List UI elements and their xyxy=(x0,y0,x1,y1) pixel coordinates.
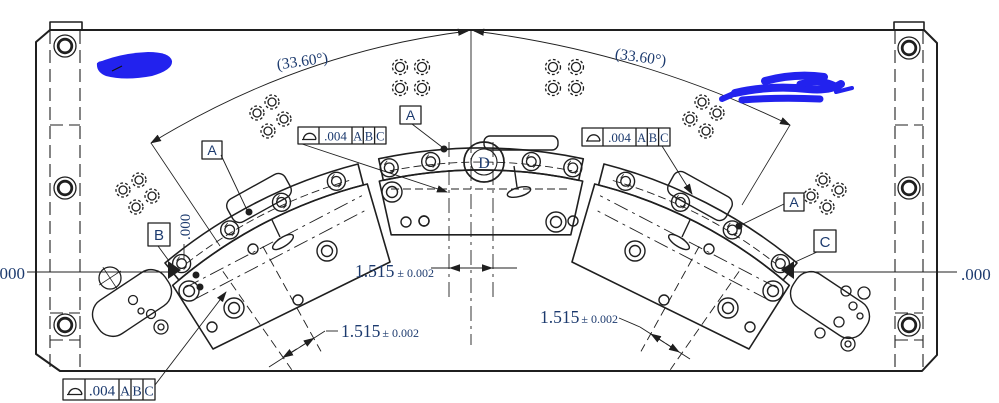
counterbore-hole xyxy=(382,182,402,202)
profile-of-surface-icon xyxy=(67,389,82,395)
plate-tab-right xyxy=(894,22,924,30)
datum-label-d: D xyxy=(478,155,490,172)
counterbore-hole xyxy=(224,298,244,318)
dim-value: 1.515 xyxy=(355,261,395,281)
zero-right-text: .000 xyxy=(961,265,991,284)
screw xyxy=(273,193,291,211)
datum-letter: B xyxy=(154,227,164,244)
angle-dim-right-text: (33.60°) xyxy=(614,46,667,70)
gdt-datum: B xyxy=(649,131,657,145)
zero-left-text: .000 xyxy=(0,264,25,283)
counterbore-hole xyxy=(317,241,337,261)
hole-cluster xyxy=(683,95,724,138)
dim-right-text: 1.515± 0.002 xyxy=(540,307,618,327)
gdt-datum: A xyxy=(120,385,131,400)
drawing-canvas: D (33.60°) (33.60°) 1.515± 0.002 xyxy=(0,0,999,403)
zero-vertical-text: .000 xyxy=(178,214,194,240)
gdt-datum: B xyxy=(132,385,141,400)
section-dot xyxy=(197,284,204,291)
gdt-tolerance: .004 xyxy=(89,384,116,400)
counterbore-hole xyxy=(718,298,738,318)
t-pin-right xyxy=(666,220,691,252)
screw xyxy=(380,159,398,177)
dim-tolerance: ± 0.002 xyxy=(397,266,434,280)
hole-cluster-grid xyxy=(546,60,584,96)
dim-center-text: 1.515± 0.002 xyxy=(355,261,434,281)
dowel-hole-clusters xyxy=(116,60,846,215)
hole-cluster xyxy=(250,95,291,138)
screw xyxy=(522,153,540,171)
counterbore-hole xyxy=(179,281,199,301)
gdt-tolerance: .004 xyxy=(324,129,347,144)
datum-feature-triangle-c xyxy=(781,261,794,279)
screw xyxy=(564,159,582,177)
gdt-datum: C xyxy=(376,130,384,144)
screw xyxy=(327,172,345,190)
profile-of-surface-icon xyxy=(302,133,316,139)
hole xyxy=(207,322,217,332)
gdt-datum: A xyxy=(353,130,362,144)
datum-letter: A xyxy=(207,142,217,158)
hole xyxy=(659,295,669,305)
plate-tab-left xyxy=(50,22,82,30)
pad-left xyxy=(86,263,178,343)
hole xyxy=(293,295,303,305)
dim-value: 1.515 xyxy=(341,321,381,341)
dim-tolerance: ± 0.002 xyxy=(382,326,419,340)
blue-scribble-left xyxy=(97,52,172,79)
blue-scribble-right xyxy=(722,76,852,100)
hole-cluster-grid xyxy=(393,60,430,96)
gdt-frame-bottom: .004 A B C xyxy=(63,379,155,400)
dim-value: 1.515 xyxy=(540,307,580,327)
dim-tolerance: ± 0.002 xyxy=(581,312,618,326)
gdt-datum: C xyxy=(660,131,668,145)
screw xyxy=(221,221,239,239)
datum-feature-triangle-b xyxy=(168,261,181,279)
hole-cluster xyxy=(804,173,846,214)
screw xyxy=(422,153,440,171)
counterbore-hole xyxy=(546,212,566,232)
profile-of-surface-icon xyxy=(586,135,600,141)
datum-tag-b: B xyxy=(148,223,181,279)
dim-right: 1.515± 0.002 xyxy=(540,246,739,369)
gdt-datum: C xyxy=(144,385,153,400)
hole-cluster xyxy=(116,173,159,214)
counterbore-hole xyxy=(763,281,783,301)
datum-letter: A xyxy=(406,107,416,123)
hole xyxy=(401,217,411,227)
hole xyxy=(419,216,429,226)
datum-tag-a-2: A xyxy=(400,106,448,153)
pad-right xyxy=(784,265,876,351)
datum-letter: A xyxy=(789,194,799,210)
t-pin-left xyxy=(270,220,295,252)
gdt-tolerance: .004 xyxy=(608,130,631,145)
hole xyxy=(745,322,755,332)
gdt-frame-top-left: .004 A B C xyxy=(298,127,386,144)
cad-drawing-view: D (33.60°) (33.60°) 1.515± 0.002 xyxy=(0,0,999,403)
screw xyxy=(617,172,635,190)
dim-left-text: 1.515± 0.002 xyxy=(341,321,419,341)
section-dot xyxy=(193,272,200,279)
gdt-datum: B xyxy=(365,130,373,144)
counterbore-hole xyxy=(625,241,645,261)
angle-dim-left-text: (33.60°) xyxy=(276,50,329,74)
clamp-bar-right xyxy=(665,169,735,224)
gdt-frame-top-right: .004 A B C xyxy=(582,128,670,146)
datum-letter: C xyxy=(820,234,831,251)
gdt-datum: A xyxy=(637,131,646,145)
gdt-leader-2 xyxy=(662,146,692,194)
block-holes xyxy=(179,182,783,332)
